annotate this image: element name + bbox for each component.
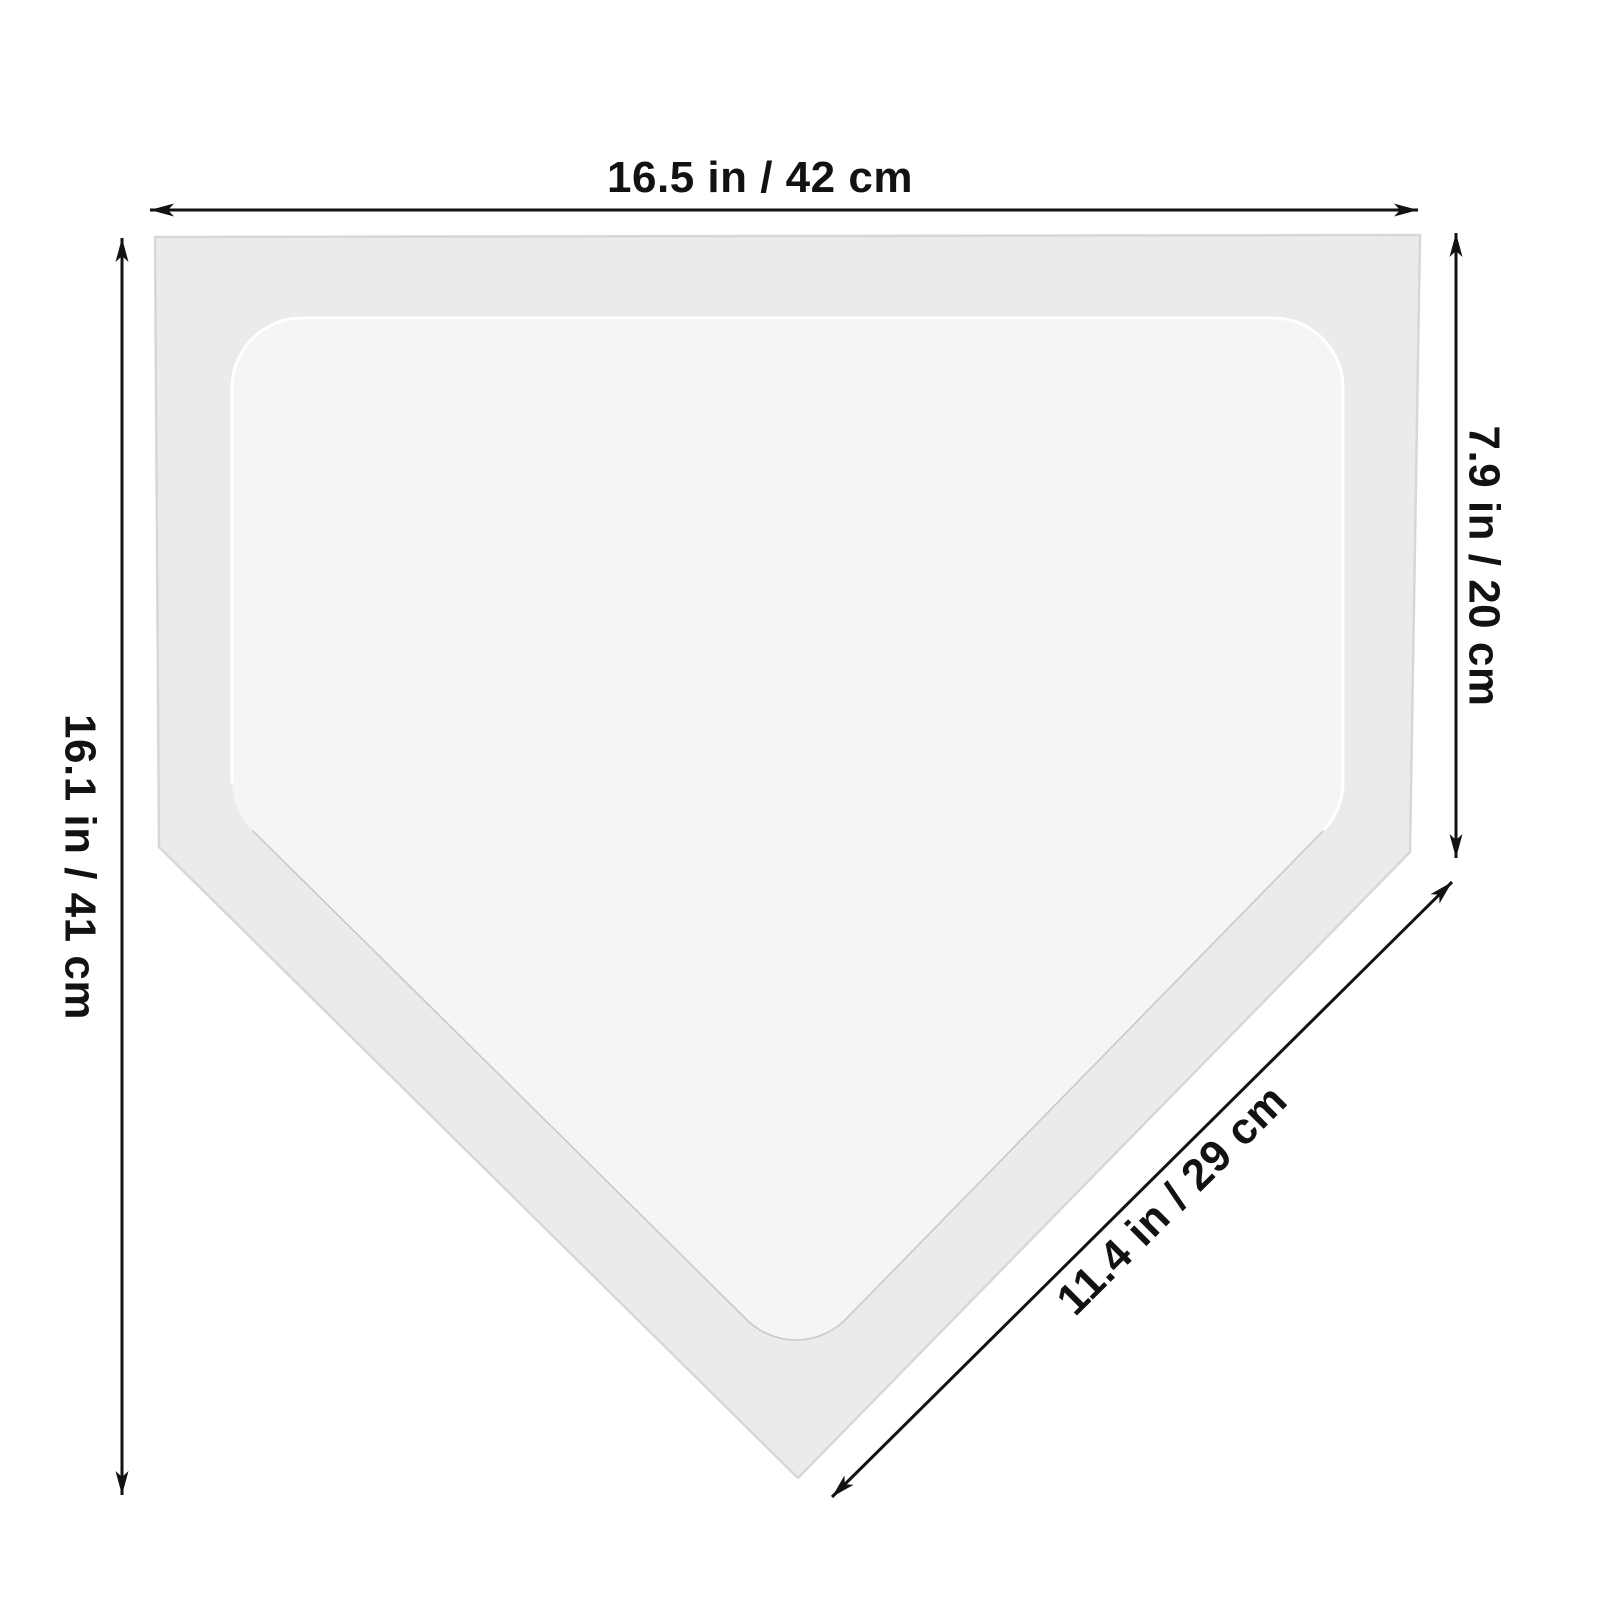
dimension-label-top-width: 16.5 in / 42 cm xyxy=(607,153,913,202)
dimension-label-left-height: 16.1 in / 41 cm xyxy=(56,714,105,1020)
diagram-canvas: 16.5 in / 42 cm 16.1 in / 41 cm 7.9 in /… xyxy=(0,0,1600,1600)
dimension-top-width: 16.5 in / 42 cm xyxy=(150,153,1418,210)
dimension-left-height: 16.1 in / 41 cm xyxy=(56,238,123,1495)
dimension-right-side: 7.9 in / 20 cm xyxy=(1456,233,1509,858)
dimension-label-right-side: 7.9 in / 20 cm xyxy=(1460,426,1509,707)
home-plate-dimension-diagram: 16.5 in / 42 cm 16.1 in / 41 cm 7.9 in /… xyxy=(0,0,1600,1600)
